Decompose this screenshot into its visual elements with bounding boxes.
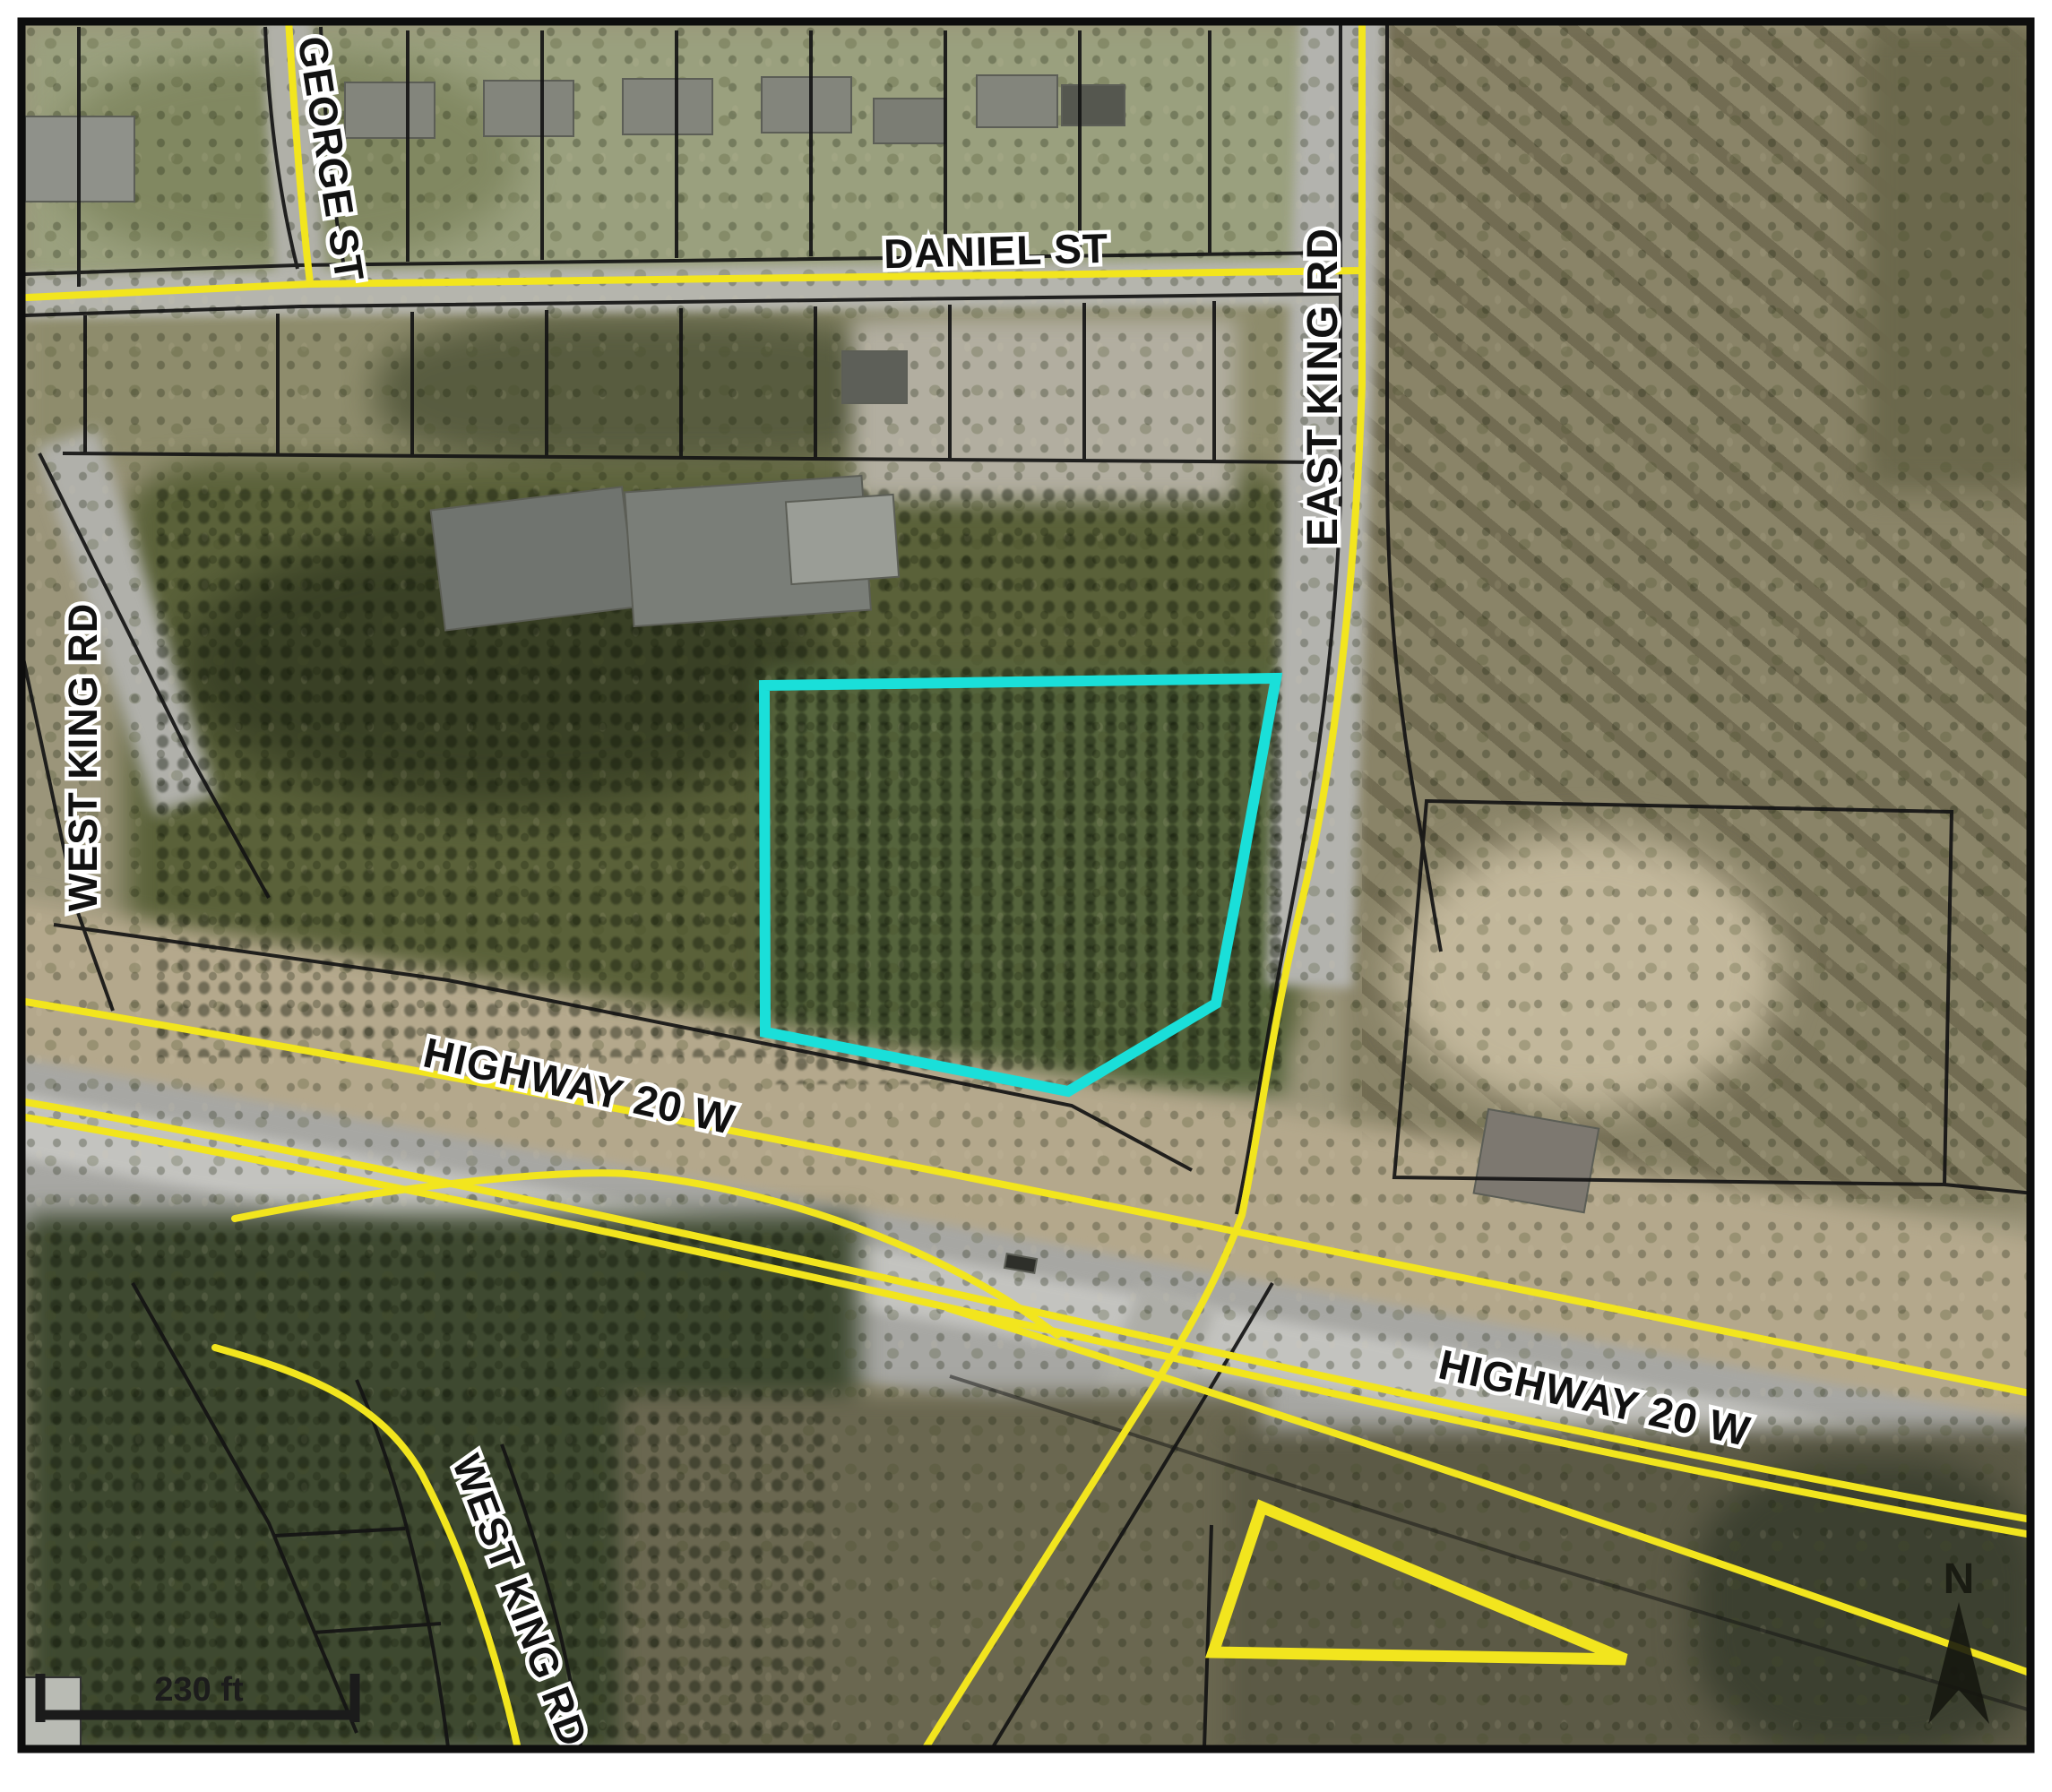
building-shed <box>1062 85 1125 125</box>
margin-left <box>0 0 18 1792</box>
daniel-st-casing <box>25 253 1341 315</box>
building <box>623 79 712 134</box>
label-highway-20-w-left: HIGHWAY 20 W <box>419 1029 739 1143</box>
church-building-west <box>431 487 637 630</box>
margin-bottom <box>0 1753 2052 1792</box>
highlight-triangle <box>1213 1507 1625 1659</box>
house-southeast <box>1474 1109 1599 1212</box>
west-king-left-casing <box>2 453 269 1011</box>
building <box>874 99 945 143</box>
highway-north-row-line <box>54 925 1192 1170</box>
east-king-east-casing <box>1387 25 1441 952</box>
building <box>345 82 435 138</box>
highway-turn-lane-line <box>235 1173 1057 1335</box>
daniel-st-line <box>27 271 1362 297</box>
parcel-lines-southwest <box>133 1283 441 1733</box>
north-arrow-icon <box>1928 1602 1989 1724</box>
parcel-line-triangle-west <box>1204 1525 1211 1747</box>
car <box>1004 1254 1037 1273</box>
parcel-highlight[interactable] <box>764 678 1276 1091</box>
margin-top <box>0 0 2052 18</box>
building <box>977 75 1057 127</box>
building-shed <box>842 351 907 403</box>
highway-centerline-1 <box>25 1102 2052 1523</box>
east-king-west-casing <box>1237 25 1341 1214</box>
building <box>484 81 573 136</box>
road-labels: GEORGE ST DANIEL ST EAST KING RD WEST KI… <box>60 33 1755 1753</box>
scale-bar-label: 230 ft <box>154 1671 244 1709</box>
scale-bar: 230 ft <box>40 1671 355 1722</box>
label-west-king-rd-left: WEST KING RD <box>60 603 106 912</box>
map-overlay: GEORGE ST DANIEL ST EAST KING RD WEST KI… <box>0 0 2052 1792</box>
label-east-king-rd: EAST KING RD <box>1299 228 1347 547</box>
parcel-line-row2-bottom <box>63 453 1324 462</box>
parcel-line-row2-lots <box>85 301 1214 461</box>
margin-right <box>2034 0 2052 1792</box>
west-king-rd-south-line <box>215 1348 518 1749</box>
church-building-east <box>786 495 899 584</box>
north-arrow-label: N <box>1944 1555 1975 1603</box>
map-canvas[interactable]: GEORGE ST DANIEL ST EAST KING RD WEST KI… <box>0 0 2052 1792</box>
building <box>762 77 851 133</box>
label-daniel-st: DANIEL ST <box>883 225 1108 278</box>
